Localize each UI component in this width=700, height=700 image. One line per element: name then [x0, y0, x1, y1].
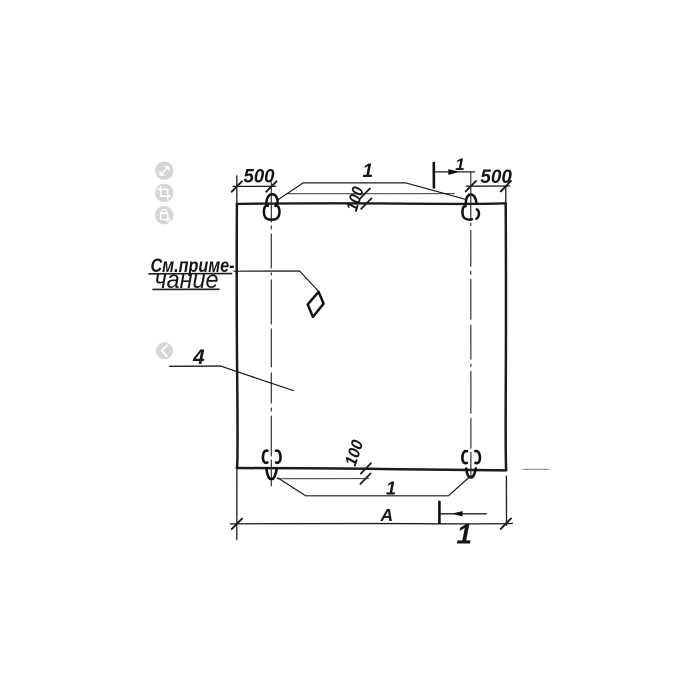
svg-text:1: 1 [457, 519, 473, 550]
svg-text:500: 500 [244, 165, 275, 187]
svg-text:1: 1 [386, 478, 396, 498]
svg-text:500: 500 [480, 166, 512, 188]
svg-text:А: А [380, 505, 394, 525]
svg-text:1: 1 [363, 161, 374, 182]
svg-text:1: 1 [455, 155, 464, 174]
